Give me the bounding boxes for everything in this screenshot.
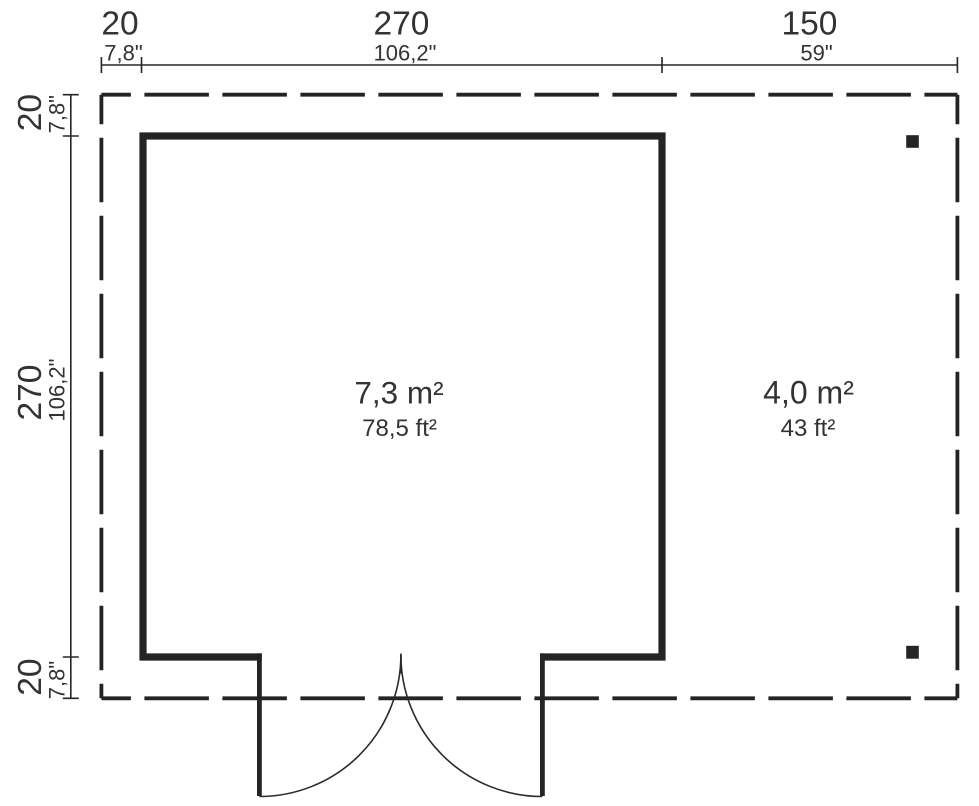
svg-text:20: 20 xyxy=(12,94,49,131)
svg-text:78,5 ft²: 78,5 ft² xyxy=(362,415,437,442)
svg-text:150: 150 xyxy=(782,5,838,42)
svg-text:7,8": 7,8" xyxy=(104,41,142,66)
svg-text:7,3 m²: 7,3 m² xyxy=(354,375,443,411)
svg-text:20: 20 xyxy=(101,5,138,42)
svg-text:7,8": 7,8" xyxy=(45,661,70,699)
svg-text:43 ft²: 43 ft² xyxy=(781,415,836,442)
svg-text:59": 59" xyxy=(800,41,832,66)
svg-text:106,2": 106,2" xyxy=(45,359,70,422)
svg-text:20: 20 xyxy=(12,658,49,695)
svg-text:270: 270 xyxy=(12,365,49,421)
svg-text:106,2": 106,2" xyxy=(374,41,437,66)
svg-text:270: 270 xyxy=(374,5,430,42)
svg-text:7,8": 7,8" xyxy=(45,95,70,133)
svg-text:4,0 m²: 4,0 m² xyxy=(763,375,854,411)
